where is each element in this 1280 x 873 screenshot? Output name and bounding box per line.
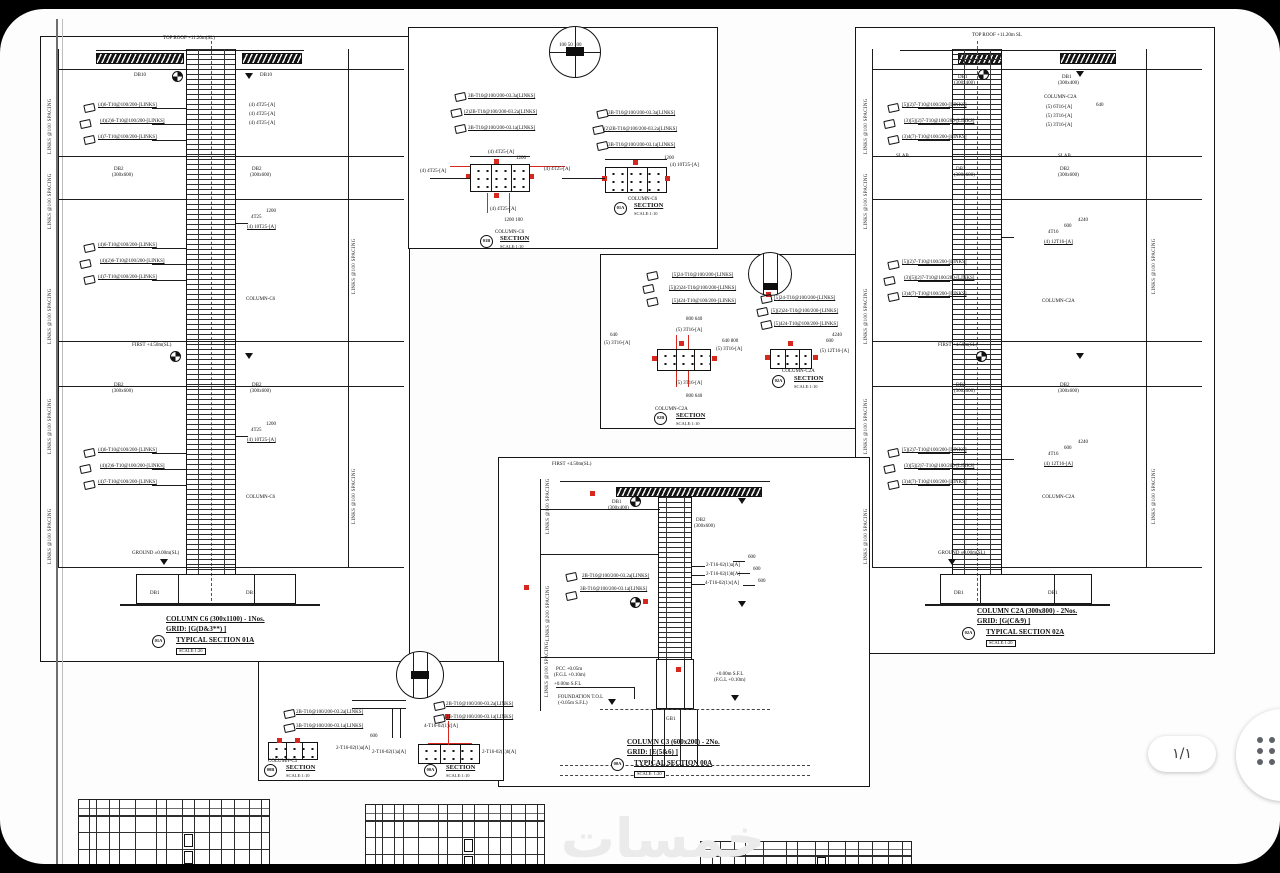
annotation-label: LINKS @100 SPACING [1152,468,1157,524]
line [430,178,470,179]
annotation-label: 4T16 [1048,452,1059,457]
detail-fill [763,283,778,290]
beam-hatch [616,487,762,497]
level-marker [630,597,641,608]
annotation-label: SECTION [500,236,529,243]
annotation-label: [5](2)7-T10@100/200-[LINKS] [902,260,967,265]
annotation-label: COLUMN-C6 [246,495,275,500]
level-marker [978,69,989,80]
annotation-label: 600 [758,579,766,584]
line [733,561,745,562]
line [400,708,401,738]
line [540,554,658,555]
line [236,436,248,437]
annotation-label: (F.G.L +0.10m) [554,673,585,678]
annotation-label: LINKS @100 SPACING [1152,238,1157,294]
annotation-label: 3B-T10@100/200-03.1a[LINKS] [608,143,675,148]
annotation-label: 1200 [266,209,276,214]
annotation-label: 600 [748,555,756,560]
line [352,700,406,701]
line [872,156,1202,157]
annotation-label: (4)(2)6-T10@100/200-[LINKS] [100,259,165,264]
red-highlight [652,356,657,361]
table-column-line [872,842,873,864]
section-bubble: 01B [480,235,493,248]
annotation-label: 4-T16-02(1)c[A] [424,724,458,729]
level-arrow [160,559,168,565]
line [692,566,705,567]
annotation-label: LINKS @100 SPACING [352,238,357,294]
annotation-label: SCALE:1:10 [286,774,310,779]
annotation-label: 2-T16-02(1)a[A] [706,563,740,568]
annotation-label: LINKS @100 SPACING [546,478,551,534]
annotation-label: (4) 4T25-[A] [420,169,446,174]
line [58,49,59,567]
annotation-label: DB1 [1048,591,1057,596]
line [1002,237,1014,238]
section-divider [799,350,800,368]
annotation-label: SCALE:1:10 [500,245,524,250]
line [872,386,1202,387]
table-column-line [902,842,903,864]
annotation-label: 3B-T10@100/200-03.1a[LINKS] [468,126,535,131]
line [925,604,1110,606]
annotation-label: LINKS @100 SPACING [48,173,53,229]
red-highlight [277,738,282,743]
level-marker [170,351,181,362]
level-arrow [738,601,746,607]
annotation-label: SCALE:1:10 [634,212,658,217]
annotation-label: GROUND ±0.00m(SL) [132,551,179,556]
annotation-label: (300x400) [1058,81,1079,86]
line [392,708,393,738]
section-bubble: 02A [772,375,785,388]
line [872,341,1202,342]
watermark: خمسات [548,807,778,864]
annotation-label: 600 [1064,224,1072,229]
line [152,108,186,109]
dashed-line [600,709,770,710]
annotation-label: GROUND ±0.00m(SL) [938,551,985,556]
annotation-label: LINKS @100 SPACING [48,288,53,344]
annotation-label: FOUNDATION T.O.L [558,695,603,700]
annotation-label: DB2 [956,167,965,172]
red-highlight [633,160,638,165]
annotation-label: (5) 3T16-[A] [1046,123,1072,128]
section-divider [511,165,512,191]
annotation-label: 3B-T10@100/200-03.1a[LINKS] [296,724,363,729]
annotation-label: (4) 12T16-[A] [1044,462,1073,467]
annotation-label: 600 [826,339,834,344]
annotation-label: COLUMN-C2A [1042,299,1075,304]
rebar-line [684,497,685,659]
section-bubble: 01A [152,635,165,648]
annotation-label: (4) 4T25-[A] [488,150,514,155]
bend-shape-glyph [817,857,826,864]
annotation-label: (4)(2)6-T10@100/200-[LINKS] [100,464,165,469]
line [1146,49,1147,567]
panel-title: COLUMN C2A (300x800) - 2Nos. [977,608,1077,615]
annotation-label: (4) 4T25-[A] [490,207,516,212]
section-divider [694,350,695,370]
annotation-label: DB2 [1060,383,1069,388]
annotation-label: DB1 [954,591,963,596]
outline-rect [136,574,296,604]
page-indicator-label: ١/١ [1172,746,1192,762]
line [540,657,658,658]
bend-shape-glyph [184,851,193,864]
level-marker [976,351,987,362]
section-divider [460,745,461,763]
table-header-line [366,813,544,814]
table-row-line [366,837,544,838]
red-highlight [524,585,529,590]
annotation-label: (4)7-T10@100/200-[LINKS] [98,275,157,280]
annotation-label: (4)6-T10@100/200-[LINKS] [98,103,157,108]
annotation-label: (3)[5](2)7-T10@100/200-[LINKS] [904,119,974,124]
line [872,49,873,567]
section-cutaway [657,349,711,371]
bend-shape-glyph [464,856,473,864]
annotation-label: 4-T16-02(1)c[A] [705,581,739,586]
annotation-label: LINKS @100 SPACING [864,98,869,154]
line [918,140,950,141]
page-indicator-pill[interactable]: ١/١ [1148,736,1216,772]
section-bubble: 02B [654,412,667,425]
annotation-label: DB2 [252,167,261,172]
line [900,50,1116,51]
annotation-label: 800 640 [686,317,702,322]
annotation-label: (2)2B-T10@100/200-03.2a[LINKS] [464,110,537,115]
annotation-label: LINKS @100 SPACING [48,508,53,564]
annotation-label: 1200 [664,156,674,161]
line [918,108,950,109]
line [152,485,186,486]
level-arrow [1076,71,1084,77]
line [634,687,635,699]
line [560,481,770,482]
panel-title: TYPICAL SECTION 01A [176,637,254,644]
section-cutaway [418,744,480,764]
annotation-label: (4) 4T25-[A] [249,112,275,117]
outline-rect [940,574,1092,604]
table-column-line [858,842,859,864]
annotation-label: DB2 [114,167,123,172]
annotation-label: (300x600) [1058,389,1079,394]
dashed-line [560,775,810,776]
annotation-label: 2B-T10@100/200-03.2a[LINKS] [582,574,649,579]
annotation-label: 4T25 [251,428,262,433]
annotation-label: (3)[5](2)7-T10@100/200-[LINKS] [904,276,974,281]
annotation-label: 4240 [1078,218,1088,223]
beam-hatch [96,53,184,64]
line [692,575,705,576]
annotation-label: 640 [1096,103,1104,108]
section-divider [647,168,648,192]
annotation-label: SCALE: 1:20 [634,771,665,778]
annotation-label: 600 [370,734,378,739]
line [236,223,248,224]
annotation-label: 2B-T10@100/200-03.2a[LINKS] [446,702,513,707]
line [872,567,1202,568]
section-divider [491,165,492,191]
annotation-label: (5) 3T16-[A] [716,347,742,352]
annotation-label: (300x600) [112,173,133,178]
outline-rect [656,659,694,709]
annotation-label: COLUMN-C2A [782,369,815,374]
annotation-label: LINKS @100 SPACING [48,398,53,454]
annotation-label: (3)4(7)-T10@100/200-[LINKS] [902,480,967,485]
level-marker [172,71,183,82]
line [254,574,255,604]
column-shaft [186,49,236,574]
line [1002,459,1014,460]
annotation-label: 800 640 [686,394,702,399]
annotation-label: LINKS @100 SPACING [352,468,357,524]
annotation-label: 4240 [832,333,842,338]
beam-hatch [242,53,302,64]
annotation-label: COLUMN-C2A [1042,495,1075,500]
annotation-label: 640 800 [722,339,738,344]
table-row-line [366,854,544,855]
level-arrow [245,73,253,79]
line [918,124,950,125]
annotation-label: DB2 [114,383,123,388]
section-cutaway [605,167,667,193]
line [980,574,981,604]
table-row-line [79,849,269,850]
annotation-label: SCALE:1:10 [446,774,470,779]
panel-title: GRID: [G(D&3**) ] [166,626,226,633]
annotation-label: DB2 [1060,167,1069,172]
line [743,585,755,586]
annotation-label: 3B-T10@100/200-03.3a[LINKS] [468,94,535,99]
line [605,159,667,160]
section-divider [302,743,303,759]
annotation-label: DB2 [696,518,705,523]
line [152,280,186,281]
annotation-label: (300x600) [694,524,715,529]
annotation-label: (4) 4T25-[A] [249,103,275,108]
red-highlight [487,193,488,213]
annotation-label: 600 [753,567,761,572]
page-edge-line [62,19,63,864]
red-highlight [679,341,684,346]
line [918,453,950,454]
annotation-label: (4)6-T10@100/200-[LINKS] [98,243,157,248]
line [540,509,660,510]
annotation-label: (3)[5](2)7-T10@100/200-[LINKS] [904,464,974,469]
annotation-label: (-0.05m S.F.L) [558,701,588,706]
annotation-label: (4) 4T25-[A] [544,167,570,172]
column-shaft [658,497,692,659]
annotation-label: +0.00m S.F.L [554,682,581,687]
schedule-table [78,799,270,864]
line [918,265,950,266]
drawing-canvas[interactable]: TOP ROOF +11.20m(SL)LINKS @100 SPACINGLI… [0,9,1280,864]
annotation-label: (4) 4T25-[A] [249,121,275,126]
annotation-label: TOP ROOF +11.20m SL [972,33,1022,38]
annotation-label: LINKS @100 SPACING [864,288,869,344]
line [918,297,950,298]
bend-shape-glyph [184,834,193,847]
line [120,604,320,606]
annotation-label: 600 [1064,446,1072,451]
annotation-label: DB1 [612,500,621,505]
red-highlight [688,335,689,349]
annotation-label: [5]424-T10@100/200-[LINKS] [774,322,838,327]
line [352,708,406,709]
annotation-label: [5](2)7-T10@100/200-[LINKS] [902,103,967,108]
section-cutaway [470,164,530,192]
line [556,687,634,688]
annotation-label: 4T25 [251,215,262,220]
table-column-line [786,842,787,864]
annotation-label: (300x600) [250,389,271,394]
annotation-label: (300x400) [608,506,629,511]
annotation-label: COLUMN-C2A [1044,95,1077,100]
line [348,49,349,567]
annotation-label: DB1 [958,75,967,80]
section-divider [785,350,786,368]
annotation-label: [5](2)24-T10@100/200-[LINKS] [669,286,736,291]
annotation-label: (5) 3T16-[A] [676,381,702,386]
annotation-label: LINKS @100 SPACING [864,398,869,454]
annotation-label: (3)4(7)-T10@100/200-[LINKS] [902,292,967,297]
annotation-label: 3B-T10@100/200-03.1a[LINKS] [446,715,513,720]
annotation-label: DB1 [246,591,255,596]
annotation-label: 640 [610,333,618,338]
annotation-label: 1200 [266,422,276,427]
level-arrow [1076,353,1084,359]
annotation-label: [5]24-T10@100/200-[LINKS] [672,273,733,278]
annotation-label: 3B-T10@100/200-03.3a[LINKS] [608,111,675,116]
section-bubble: 00B [264,764,277,777]
red-highlight [765,355,770,360]
annotation-label: [5](2)24-T10@100/200-[LINKS] [771,309,838,314]
panel-title: GRID: [E(5&6) ] [627,749,678,756]
annotation-label: SCALE:1:10 [794,385,818,390]
detail-fill [566,47,584,56]
annotation-label: 2B-T10@100/200-03.2a[LINKS] [296,710,363,715]
annotation-label: SCALE:1:20 [176,648,206,655]
line [152,140,186,141]
line [152,453,186,454]
annotation-label: +0.00m S.F.L [716,672,743,677]
red-highlight [813,355,818,360]
table-column-line [815,842,816,864]
level-marker [630,496,641,507]
line [152,248,186,249]
annotation-label: 4240 [1078,440,1088,445]
line [1054,574,1055,604]
annotation-label: (300x600) [250,173,271,178]
annotation-label: 2-T16-02(1)b[A] [706,572,740,577]
section-divider [627,168,628,192]
red-highlight [676,335,677,349]
annotation-label: [5]24-T10@100/200-[LINKS] [774,296,835,301]
annotation-label: FIRST +4.50m(SL) [132,343,171,348]
annotation-label: (3)4(7)-T10@100/200-[LINKS] [902,135,967,140]
red-highlight [665,176,670,181]
annotation-label: (4) 12T16-[A] [1044,240,1073,245]
annotation-label: SLAB [1058,154,1071,159]
annotation-label: (5) 12T16-[A] [820,349,849,354]
section-divider [440,745,441,763]
annotation-label: (4) 10T25-[A] [247,438,276,443]
annotation-label: DB2 [252,383,261,388]
red-highlight [643,599,648,604]
annotation-label: 1200 [516,156,526,161]
annotation-label: (5) 3T16-[A] [604,341,630,346]
annotation-label: TOP ROOF +11.20m(SL) [163,36,215,41]
annotation-label: 100 50 100 [559,43,582,48]
section-bubble: 00A [424,764,437,777]
annotation-label: SECTION [634,203,663,210]
annotation-label: DB2 [956,383,965,388]
annotation-label: 2-T16-02(1)b[A] [482,750,516,755]
annotation-label: DB1 [1062,75,1071,80]
red-highlight [494,193,499,198]
rebar-line [198,49,199,574]
table-row-line [79,832,269,833]
detail-fill [411,671,429,679]
apps-grid-icon [1257,737,1263,743]
table-column-line [828,842,829,864]
annotation-label: [5](2)7-T10@100/200-[LINKS] [902,448,967,453]
annotation-label: COLUMN-C6 [246,297,275,302]
line [152,469,186,470]
rebar-line [990,49,991,574]
line [918,485,950,486]
annotation-label: (4) 10T25-[A] [247,225,276,230]
table-column-line [845,842,846,864]
annotation-label: SECTION [446,765,475,772]
rebar-line [964,49,965,574]
line [684,659,685,709]
annotation-label: (4)7-T10@100/200-[LINKS] [98,135,157,140]
red-highlight [712,356,717,361]
panel-title: GRID: [G(C&9) ] [977,618,1030,625]
annotation-label: SLAB [896,154,909,159]
annotation-label: 3B-T10@100/200-03.1a[LINKS] [580,587,647,592]
annotation-label: (2)2B-T10@100/200-03.2a[LINKS] [604,127,677,132]
annotation-label: GB1 [666,717,675,722]
line [692,584,705,585]
line [666,659,667,709]
annotation-label: (300x600) [954,173,975,178]
red-highlight [295,738,300,743]
line [872,199,1202,200]
annotation-label: (4)(2)6-T10@100/200-[LINKS] [100,119,165,124]
annotation-label: LINKS @100 SPACING [48,98,53,154]
section-divider [676,350,677,370]
section-cutaway [770,349,812,369]
table-header-line [79,815,269,817]
apps-button[interactable] [1236,709,1280,801]
annotation-label: (5) 3T16-[A] [676,328,702,333]
annotation-label: PCC +0.05m [556,667,582,672]
annotation-label: LINKS @100 SPACING [864,173,869,229]
annotation-label: (4)7-T10@100/200-[LINKS] [98,480,157,485]
annotation-label: 2-T16-02(1)a[A] [336,746,370,751]
red-highlight [676,667,681,672]
annotation-label: (5) 6T16-[A] [1046,105,1072,110]
annotation-label: (4)6-T10@100/200-[LINKS] [98,448,157,453]
annotation-label: 1200 100 [504,218,523,223]
line [872,69,1202,70]
schedule-table [365,804,545,864]
